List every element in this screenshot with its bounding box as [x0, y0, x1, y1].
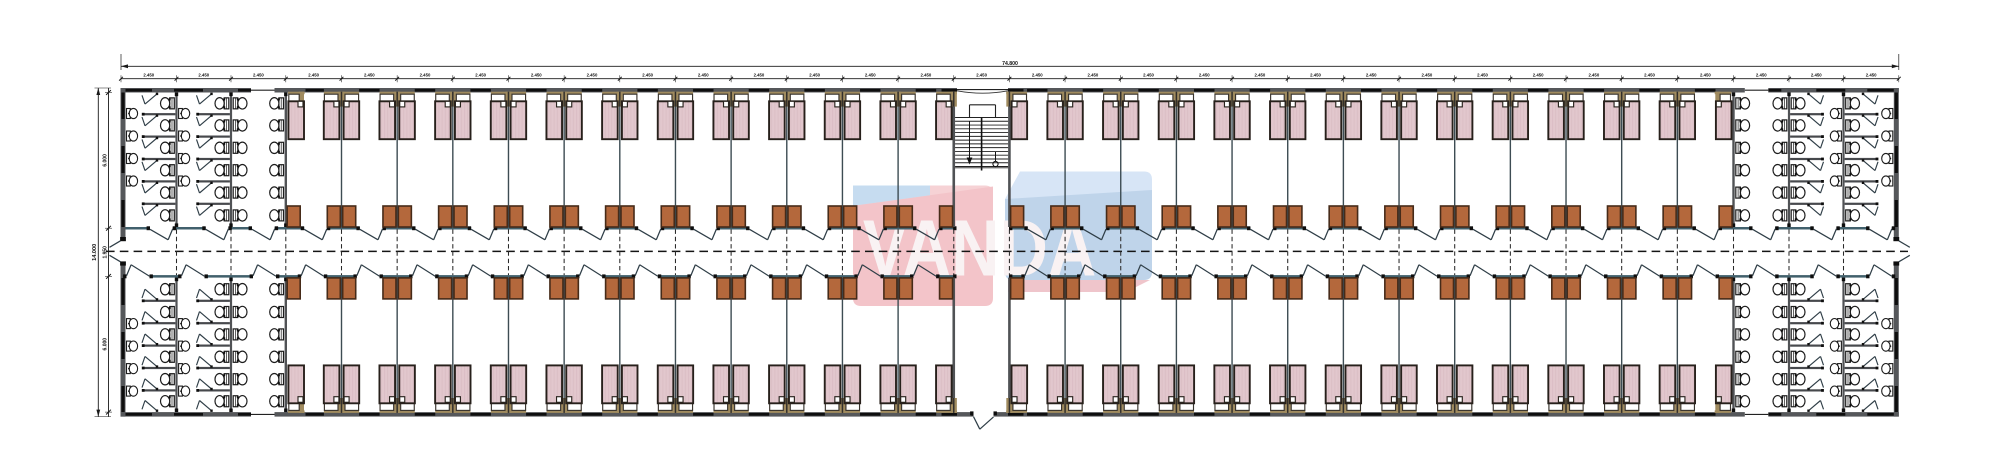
svg-text:2.450: 2.450: [253, 72, 264, 77]
svg-text:2.450: 2.450: [1700, 72, 1711, 77]
svg-text:74.800: 74.800: [1002, 61, 1018, 67]
svg-text:2.450: 2.450: [921, 72, 932, 77]
svg-text:2.450: 2.450: [976, 72, 987, 77]
svg-text:2.450: 2.450: [865, 72, 876, 77]
svg-text:2.450: 2.450: [1644, 72, 1655, 77]
svg-text:14.000: 14.000: [92, 244, 98, 261]
svg-text:2.450: 2.450: [364, 72, 375, 77]
svg-text:2.450: 2.450: [1477, 72, 1488, 77]
svg-text:6.000: 6.000: [102, 338, 108, 351]
svg-text:2.450: 2.450: [420, 72, 431, 77]
svg-text:2.450: 2.450: [1588, 72, 1599, 77]
svg-text:2.450: 2.450: [1255, 72, 1266, 77]
svg-text:2.450: 2.450: [642, 72, 653, 77]
svg-text:2.450: 2.450: [1866, 72, 1877, 77]
svg-text:2.450: 2.450: [754, 72, 765, 77]
svg-text:2.450: 2.450: [143, 72, 154, 77]
svg-text:2.450: 2.450: [698, 72, 709, 77]
svg-text:2.450: 2.450: [531, 72, 542, 77]
svg-text:2.450: 2.450: [475, 72, 486, 77]
svg-text:2.450: 2.450: [1199, 72, 1210, 77]
svg-text:2.450: 2.450: [198, 72, 209, 77]
svg-text:2.450: 2.450: [1366, 72, 1377, 77]
svg-text:2.450: 2.450: [1811, 72, 1822, 77]
svg-text:2.450: 2.450: [1032, 72, 1043, 77]
svg-text:2.450: 2.450: [1310, 72, 1321, 77]
svg-text:2.450: 2.450: [1421, 72, 1432, 77]
svg-text:2.450: 2.450: [587, 72, 598, 77]
svg-text:2.450: 2.450: [809, 72, 820, 77]
svg-text:2.450: 2.450: [1088, 72, 1099, 77]
svg-text:1.950: 1.950: [102, 246, 108, 259]
svg-text:2.450: 2.450: [308, 72, 319, 77]
svg-text:2.450: 2.450: [1143, 72, 1154, 77]
svg-text:6.000: 6.000: [102, 154, 108, 167]
svg-text:2.450: 2.450: [1756, 72, 1767, 77]
svg-text:2.450: 2.450: [1533, 72, 1544, 77]
